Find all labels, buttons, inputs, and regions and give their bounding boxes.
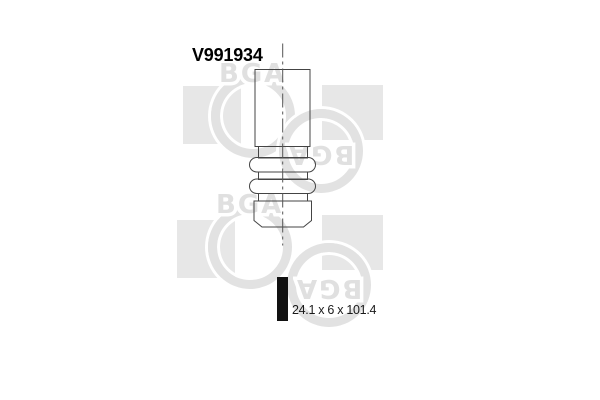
dimension-marker-bar: [277, 277, 288, 321]
product-image: BGABGA BGABGA BGABGA BGABGA V991934 24.1…: [0, 0, 600, 400]
valve-technical-drawing: [0, 0, 600, 400]
part-number: V991934: [192, 45, 263, 66]
dimensions-label: 24.1 x 6 x 101.4: [292, 303, 376, 317]
